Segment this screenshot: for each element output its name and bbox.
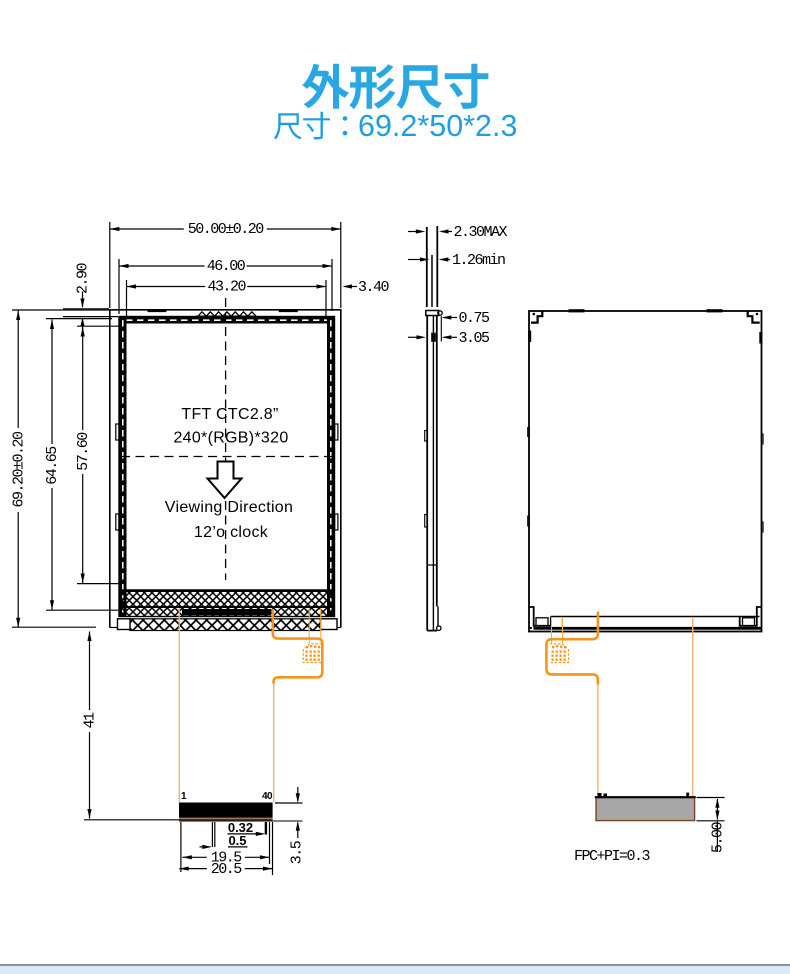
svg-text:5.00: 5.00 [710, 822, 727, 854]
svg-text:57.60: 57.60 [75, 432, 92, 471]
svg-text:41: 41 [82, 712, 99, 729]
svg-text:0.75: 0.75 [459, 310, 491, 327]
svg-text:50.00±0.20: 50.00±0.20 [188, 221, 265, 238]
svg-text:3.5: 3.5 [289, 840, 306, 864]
svg-text:3.40: 3.40 [358, 279, 390, 296]
svg-text:69.20±0.20: 69.20±0.20 [10, 431, 27, 508]
svg-text:240*(RGB)*320: 240*(RGB)*320 [173, 430, 288, 447]
svg-text:69.2*50*2.3: 69.2*50*2.3 [358, 109, 517, 143]
svg-text:2.30MAX: 2.30MAX [454, 224, 508, 241]
svg-text:0.5: 0.5 [228, 833, 246, 848]
svg-text:Viewing Direction: Viewing Direction [165, 499, 293, 516]
svg-text:64.65: 64.65 [44, 446, 61, 485]
svg-text:46.00: 46.00 [207, 258, 246, 275]
svg-text:TFT CTC2.8”: TFT CTC2.8” [181, 406, 278, 423]
svg-text:1: 1 [181, 791, 187, 802]
svg-text:FPC+PI=0.3: FPC+PI=0.3 [574, 848, 651, 865]
svg-text:12’o clock: 12’o clock [194, 524, 269, 541]
svg-text:3.05: 3.05 [459, 330, 491, 347]
svg-text:40: 40 [262, 791, 273, 802]
svg-text:20.5: 20.5 [211, 861, 243, 878]
svg-text:1.26min: 1.26min [452, 252, 505, 269]
svg-text:2.90: 2.90 [75, 263, 92, 295]
svg-text:43.20: 43.20 [207, 279, 246, 296]
